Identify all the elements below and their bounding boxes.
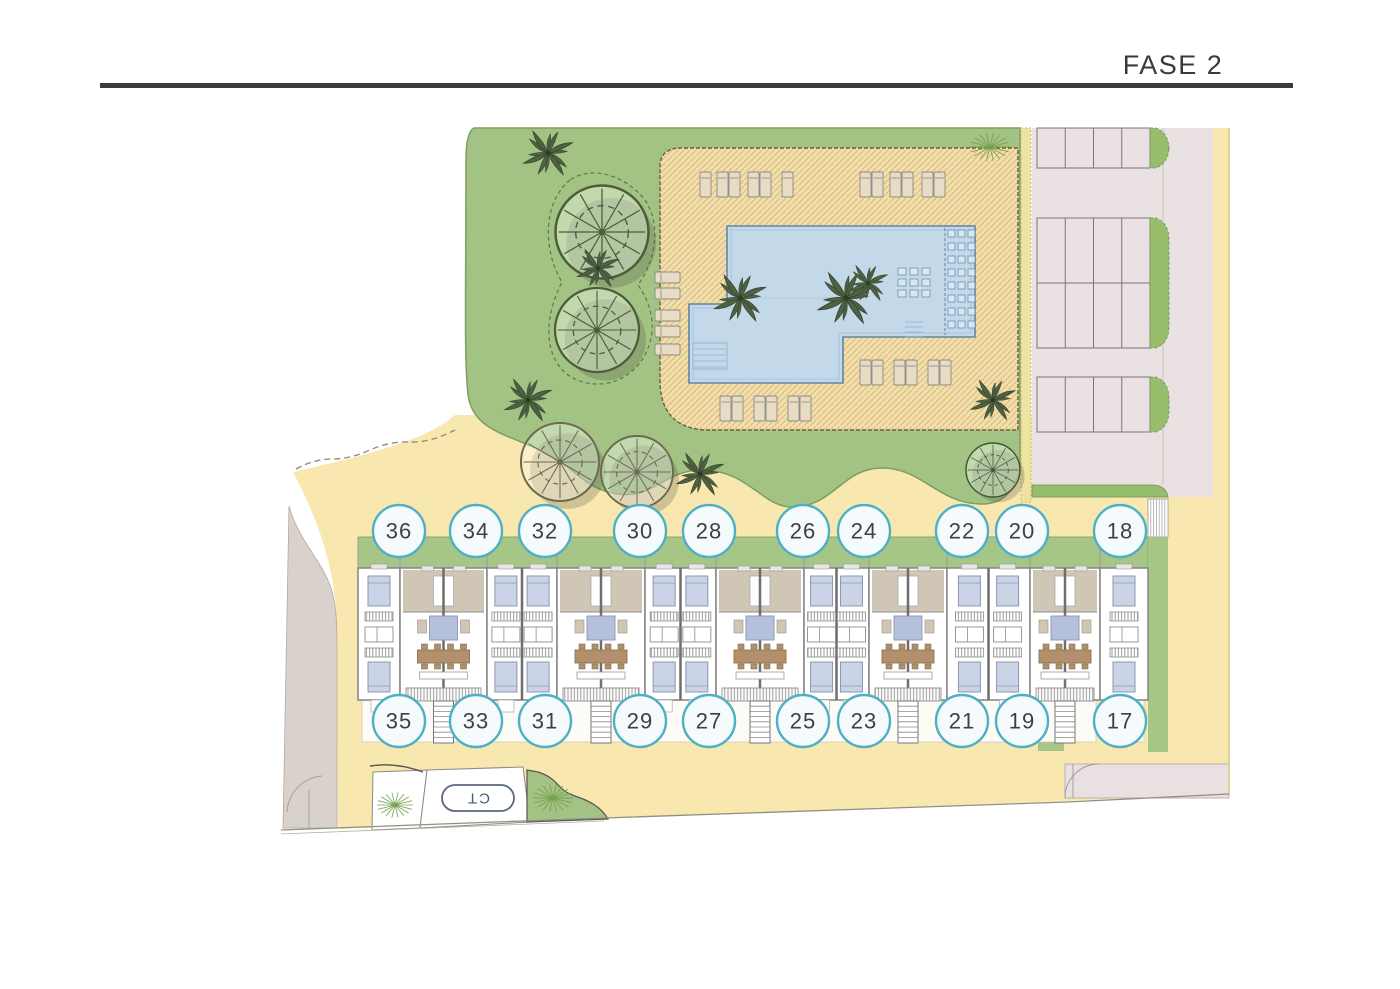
pool-jet bbox=[958, 243, 965, 250]
porch-decking bbox=[875, 688, 941, 701]
sofa bbox=[894, 616, 922, 640]
kitchen-counter bbox=[736, 672, 784, 679]
lot-marker[interactable]: 25 bbox=[777, 695, 829, 747]
sun-lounger bbox=[872, 360, 883, 385]
sun-lounger bbox=[906, 360, 917, 385]
dining-table bbox=[575, 650, 627, 663]
lot-marker[interactable]: 27 bbox=[683, 695, 735, 747]
lot-number: 28 bbox=[696, 519, 722, 544]
porch-decking bbox=[1036, 688, 1094, 701]
lot-number: 34 bbox=[463, 519, 489, 544]
sun-lounger bbox=[788, 396, 799, 421]
pool-jet bbox=[948, 282, 955, 289]
sun-lounger bbox=[894, 360, 905, 385]
site-plan-page: FASE 2 363432302826242220183533312927252… bbox=[0, 0, 1400, 989]
lot-number: 36 bbox=[386, 519, 412, 544]
pool-jet bbox=[958, 269, 965, 276]
lot-marker[interactable]: 29 bbox=[614, 695, 666, 747]
pool-jet bbox=[948, 321, 955, 328]
lot-marker[interactable]: 24 bbox=[838, 505, 890, 557]
pool-jet bbox=[948, 295, 955, 302]
transformer-label: CT bbox=[442, 785, 514, 811]
lot-number: 20 bbox=[1009, 519, 1035, 544]
pool-jet bbox=[968, 243, 975, 250]
dining-table bbox=[1039, 650, 1091, 663]
sun-lounger bbox=[782, 172, 793, 197]
sun-lounger bbox=[655, 326, 680, 337]
pool-jet bbox=[958, 321, 965, 328]
sun-lounger bbox=[928, 360, 939, 385]
sun-lounger bbox=[860, 172, 871, 197]
dining-table bbox=[418, 650, 470, 663]
pool-jet bbox=[958, 295, 965, 302]
dining-table bbox=[734, 650, 786, 663]
lot-number: 30 bbox=[627, 519, 653, 544]
pool-jet bbox=[948, 243, 955, 250]
entry-stair bbox=[898, 701, 918, 743]
lot-number: 18 bbox=[1107, 519, 1133, 544]
lot-number: 31 bbox=[532, 709, 558, 734]
pool-jet bbox=[948, 269, 955, 276]
sun-lounger bbox=[655, 310, 680, 321]
pool-jet bbox=[968, 269, 975, 276]
lot-number: 33 bbox=[463, 709, 489, 734]
sun-lounger bbox=[754, 396, 765, 421]
lot-marker[interactable]: 31 bbox=[519, 695, 571, 747]
sun-lounger bbox=[700, 172, 711, 197]
lot-number: 25 bbox=[790, 709, 816, 734]
sun-lounger bbox=[890, 172, 901, 197]
lot-marker[interactable]: 33 bbox=[450, 695, 502, 747]
pool-jet bbox=[948, 308, 955, 315]
lot-marker[interactable]: 35 bbox=[373, 695, 425, 747]
lot-number: 32 bbox=[532, 519, 558, 544]
lot-number: 35 bbox=[386, 709, 412, 734]
sofa bbox=[430, 616, 458, 640]
lot-marker[interactable]: 34 bbox=[450, 505, 502, 557]
sun-lounger bbox=[766, 396, 777, 421]
pool-jet bbox=[958, 230, 965, 237]
lot-number: 21 bbox=[949, 709, 975, 734]
lot-number: 17 bbox=[1107, 709, 1133, 734]
sun-lounger bbox=[860, 360, 871, 385]
pool-jet bbox=[958, 256, 965, 263]
lot-marker[interactable]: 28 bbox=[683, 505, 735, 557]
lot-number: 26 bbox=[790, 519, 816, 544]
pool-jet bbox=[968, 256, 975, 263]
lot-marker[interactable]: 22 bbox=[936, 505, 988, 557]
porch-decking bbox=[722, 688, 798, 701]
sun-lounger bbox=[902, 172, 913, 197]
crosswalk bbox=[1148, 499, 1168, 537]
sofa bbox=[587, 616, 615, 640]
sun-lounger bbox=[922, 172, 933, 197]
sun-lounger bbox=[748, 172, 759, 197]
lot-number: 24 bbox=[851, 519, 877, 544]
lot-marker[interactable]: 36 bbox=[373, 505, 425, 557]
parking-green-island bbox=[1150, 218, 1169, 348]
kitchen-counter bbox=[884, 672, 932, 679]
sun-lounger bbox=[934, 172, 945, 197]
lot-number: 27 bbox=[696, 709, 722, 734]
sun-lounger bbox=[720, 396, 731, 421]
pool-jet bbox=[968, 282, 975, 289]
entry-stair bbox=[1055, 701, 1075, 743]
transformer-text: CT bbox=[466, 790, 490, 807]
lot-number: 19 bbox=[1009, 709, 1035, 734]
pool-jet bbox=[968, 230, 975, 237]
sun-lounger bbox=[655, 344, 680, 355]
sun-lounger bbox=[760, 172, 771, 197]
sun-lounger bbox=[800, 396, 811, 421]
side-garden-strip bbox=[1148, 537, 1168, 752]
kitchen-counter bbox=[577, 672, 625, 679]
lot-number: 22 bbox=[949, 519, 975, 544]
lot-marker[interactable]: 26 bbox=[777, 505, 829, 557]
pool-jet bbox=[968, 295, 975, 302]
lot-marker[interactable]: 23 bbox=[838, 695, 890, 747]
garden-path bbox=[1021, 128, 1031, 502]
lot-number: 29 bbox=[627, 709, 653, 734]
site-plan-svg: 3634323028262422201835333129272523211917… bbox=[0, 0, 1400, 989]
lot-marker[interactable]: 18 bbox=[1094, 505, 1146, 557]
sun-lounger bbox=[655, 272, 680, 283]
pool-jet bbox=[958, 308, 965, 315]
sun-lounger bbox=[729, 172, 740, 197]
dining-table bbox=[882, 650, 934, 663]
lot-marker[interactable]: 20 bbox=[996, 505, 1048, 557]
pool-jet bbox=[948, 256, 955, 263]
parking-green-island bbox=[1032, 485, 1168, 497]
access-road-bottom bbox=[1065, 764, 1229, 798]
sofa bbox=[1051, 616, 1079, 640]
lot-number: 23 bbox=[851, 709, 877, 734]
lot-marker[interactable]: 17 bbox=[1094, 695, 1146, 747]
parking-lot bbox=[1032, 128, 1213, 497]
sun-lounger bbox=[872, 172, 883, 197]
pool-jet bbox=[968, 308, 975, 315]
lot-marker[interactable]: 30 bbox=[614, 505, 666, 557]
kitchen-counter bbox=[1041, 672, 1089, 679]
lot-marker[interactable]: 32 bbox=[519, 505, 571, 557]
pool-jet bbox=[968, 321, 975, 328]
sofa bbox=[746, 616, 774, 640]
entry-stair bbox=[750, 701, 770, 743]
sun-lounger bbox=[655, 288, 680, 299]
lot-marker[interactable]: 21 bbox=[936, 695, 988, 747]
pool-jet bbox=[958, 282, 965, 289]
kitchen-counter bbox=[420, 672, 468, 679]
sun-lounger bbox=[940, 360, 951, 385]
sun-lounger bbox=[732, 396, 743, 421]
pool-jet bbox=[948, 230, 955, 237]
lot-marker[interactable]: 19 bbox=[996, 695, 1048, 747]
sun-lounger bbox=[717, 172, 728, 197]
entry-stair bbox=[591, 701, 611, 743]
